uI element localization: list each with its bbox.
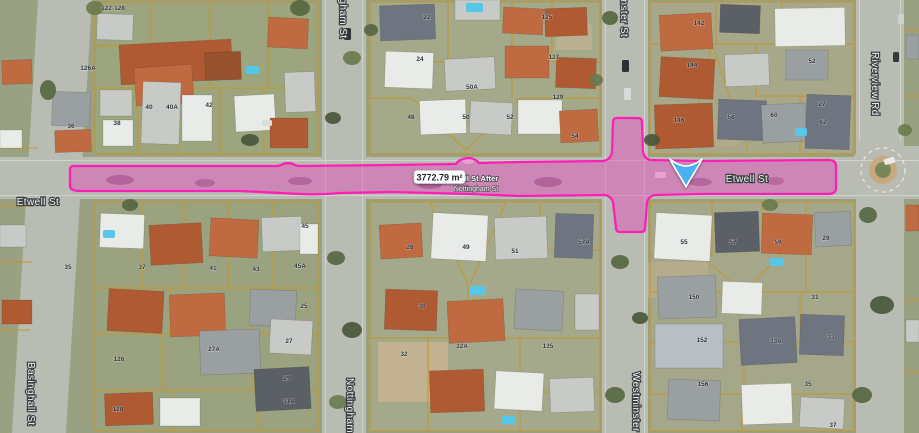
map-canvas[interactable]: Etwell St Etwell St Nottingham St Nottin…	[0, 0, 919, 433]
lot-number: 50	[462, 114, 470, 121]
lot-number: 152	[697, 337, 708, 344]
lot-number: 37	[138, 264, 146, 271]
lot-number: 60	[770, 112, 778, 119]
area-value: 3772.79 m²	[416, 172, 462, 182]
street-label-nottingham-top: Nottingham St	[337, 0, 348, 39]
lot-number: 50A	[466, 84, 478, 91]
street-label-etwell-left: Etwell St	[17, 197, 60, 208]
lot-number: 128	[113, 406, 124, 413]
street-label-riverview: Riverview Rd	[869, 52, 880, 116]
lot-number: 48	[407, 114, 415, 121]
lot-number: 33	[827, 334, 835, 341]
lot-number: 58	[727, 114, 735, 121]
lot-number: 52	[808, 58, 816, 65]
lot-number: 62	[819, 119, 827, 126]
lot-number: 33A	[770, 338, 782, 345]
lot-number: 142	[694, 20, 705, 27]
lot-number: 31A	[283, 398, 295, 405]
lot-number: 129	[553, 94, 564, 101]
lot-number: 125	[542, 14, 553, 21]
lot-number: 38	[113, 120, 121, 127]
street-label-westminster-top: Westminster St	[618, 0, 629, 37]
lot-number: 32	[400, 351, 408, 358]
lot-number: 126	[114, 356, 125, 363]
lot-number: 52	[506, 114, 514, 121]
lot-number: 126A	[80, 65, 96, 72]
lot-number: 31	[811, 294, 819, 301]
lot-number: 59	[774, 239, 782, 246]
lot-number: 35	[64, 264, 72, 271]
lot-number: 135	[543, 343, 554, 350]
street-label-nottingham-bottom: Nottingham St	[344, 378, 355, 433]
lot-number: 28	[406, 244, 414, 251]
street-label-basinghall: Basinghall St	[25, 362, 36, 426]
lot-number: 29	[283, 375, 291, 382]
lot-number: 24	[416, 56, 424, 63]
lot-number: 156	[698, 381, 709, 388]
lot-number: 43	[252, 266, 260, 273]
street-label-etwell-right: Etwell St	[726, 174, 769, 185]
lot-number: 32A	[456, 343, 468, 350]
lot-number: 22	[423, 14, 431, 21]
lot-number: 57A	[578, 239, 590, 246]
aerial-map[interactable]: Etwell St Etwell St Nottingham St Nottin…	[0, 0, 919, 433]
area-measurement-label: 3772.79 m²	[414, 171, 465, 184]
lot-number: 40A	[166, 104, 178, 111]
segment-name-line2: Nottingham St	[454, 186, 498, 193]
lot-number: 127	[549, 54, 560, 61]
lot-number: 36	[67, 123, 75, 130]
lot-number: 27	[285, 338, 293, 345]
lot-number: 146	[674, 117, 685, 124]
lot-number: 41	[209, 265, 217, 272]
lot-number: 150	[689, 294, 700, 301]
lot-number: 54	[571, 133, 579, 140]
lot-number: 40	[145, 104, 153, 111]
lot-number: 51	[511, 248, 519, 255]
lot-number: 45A	[294, 263, 306, 270]
lot-number: 42	[205, 102, 213, 109]
lot-number: 37	[829, 422, 837, 429]
lot-number: 57	[729, 239, 737, 246]
lot-number: 25	[300, 303, 308, 310]
lot-number: 27	[818, 101, 826, 108]
lot-number: 45	[301, 223, 309, 230]
street-label-westminster-bottom: Westminster St	[630, 372, 641, 433]
lot-number: 27A	[208, 346, 220, 353]
lot-number: 30	[418, 303, 426, 310]
lot-number: 49	[462, 244, 470, 251]
lot-number: 29	[822, 235, 830, 242]
lot-number: 144	[687, 62, 698, 69]
lot-number: 122-128	[101, 5, 125, 12]
lot-number: 55	[680, 239, 688, 246]
lot-number: 35	[804, 381, 812, 388]
